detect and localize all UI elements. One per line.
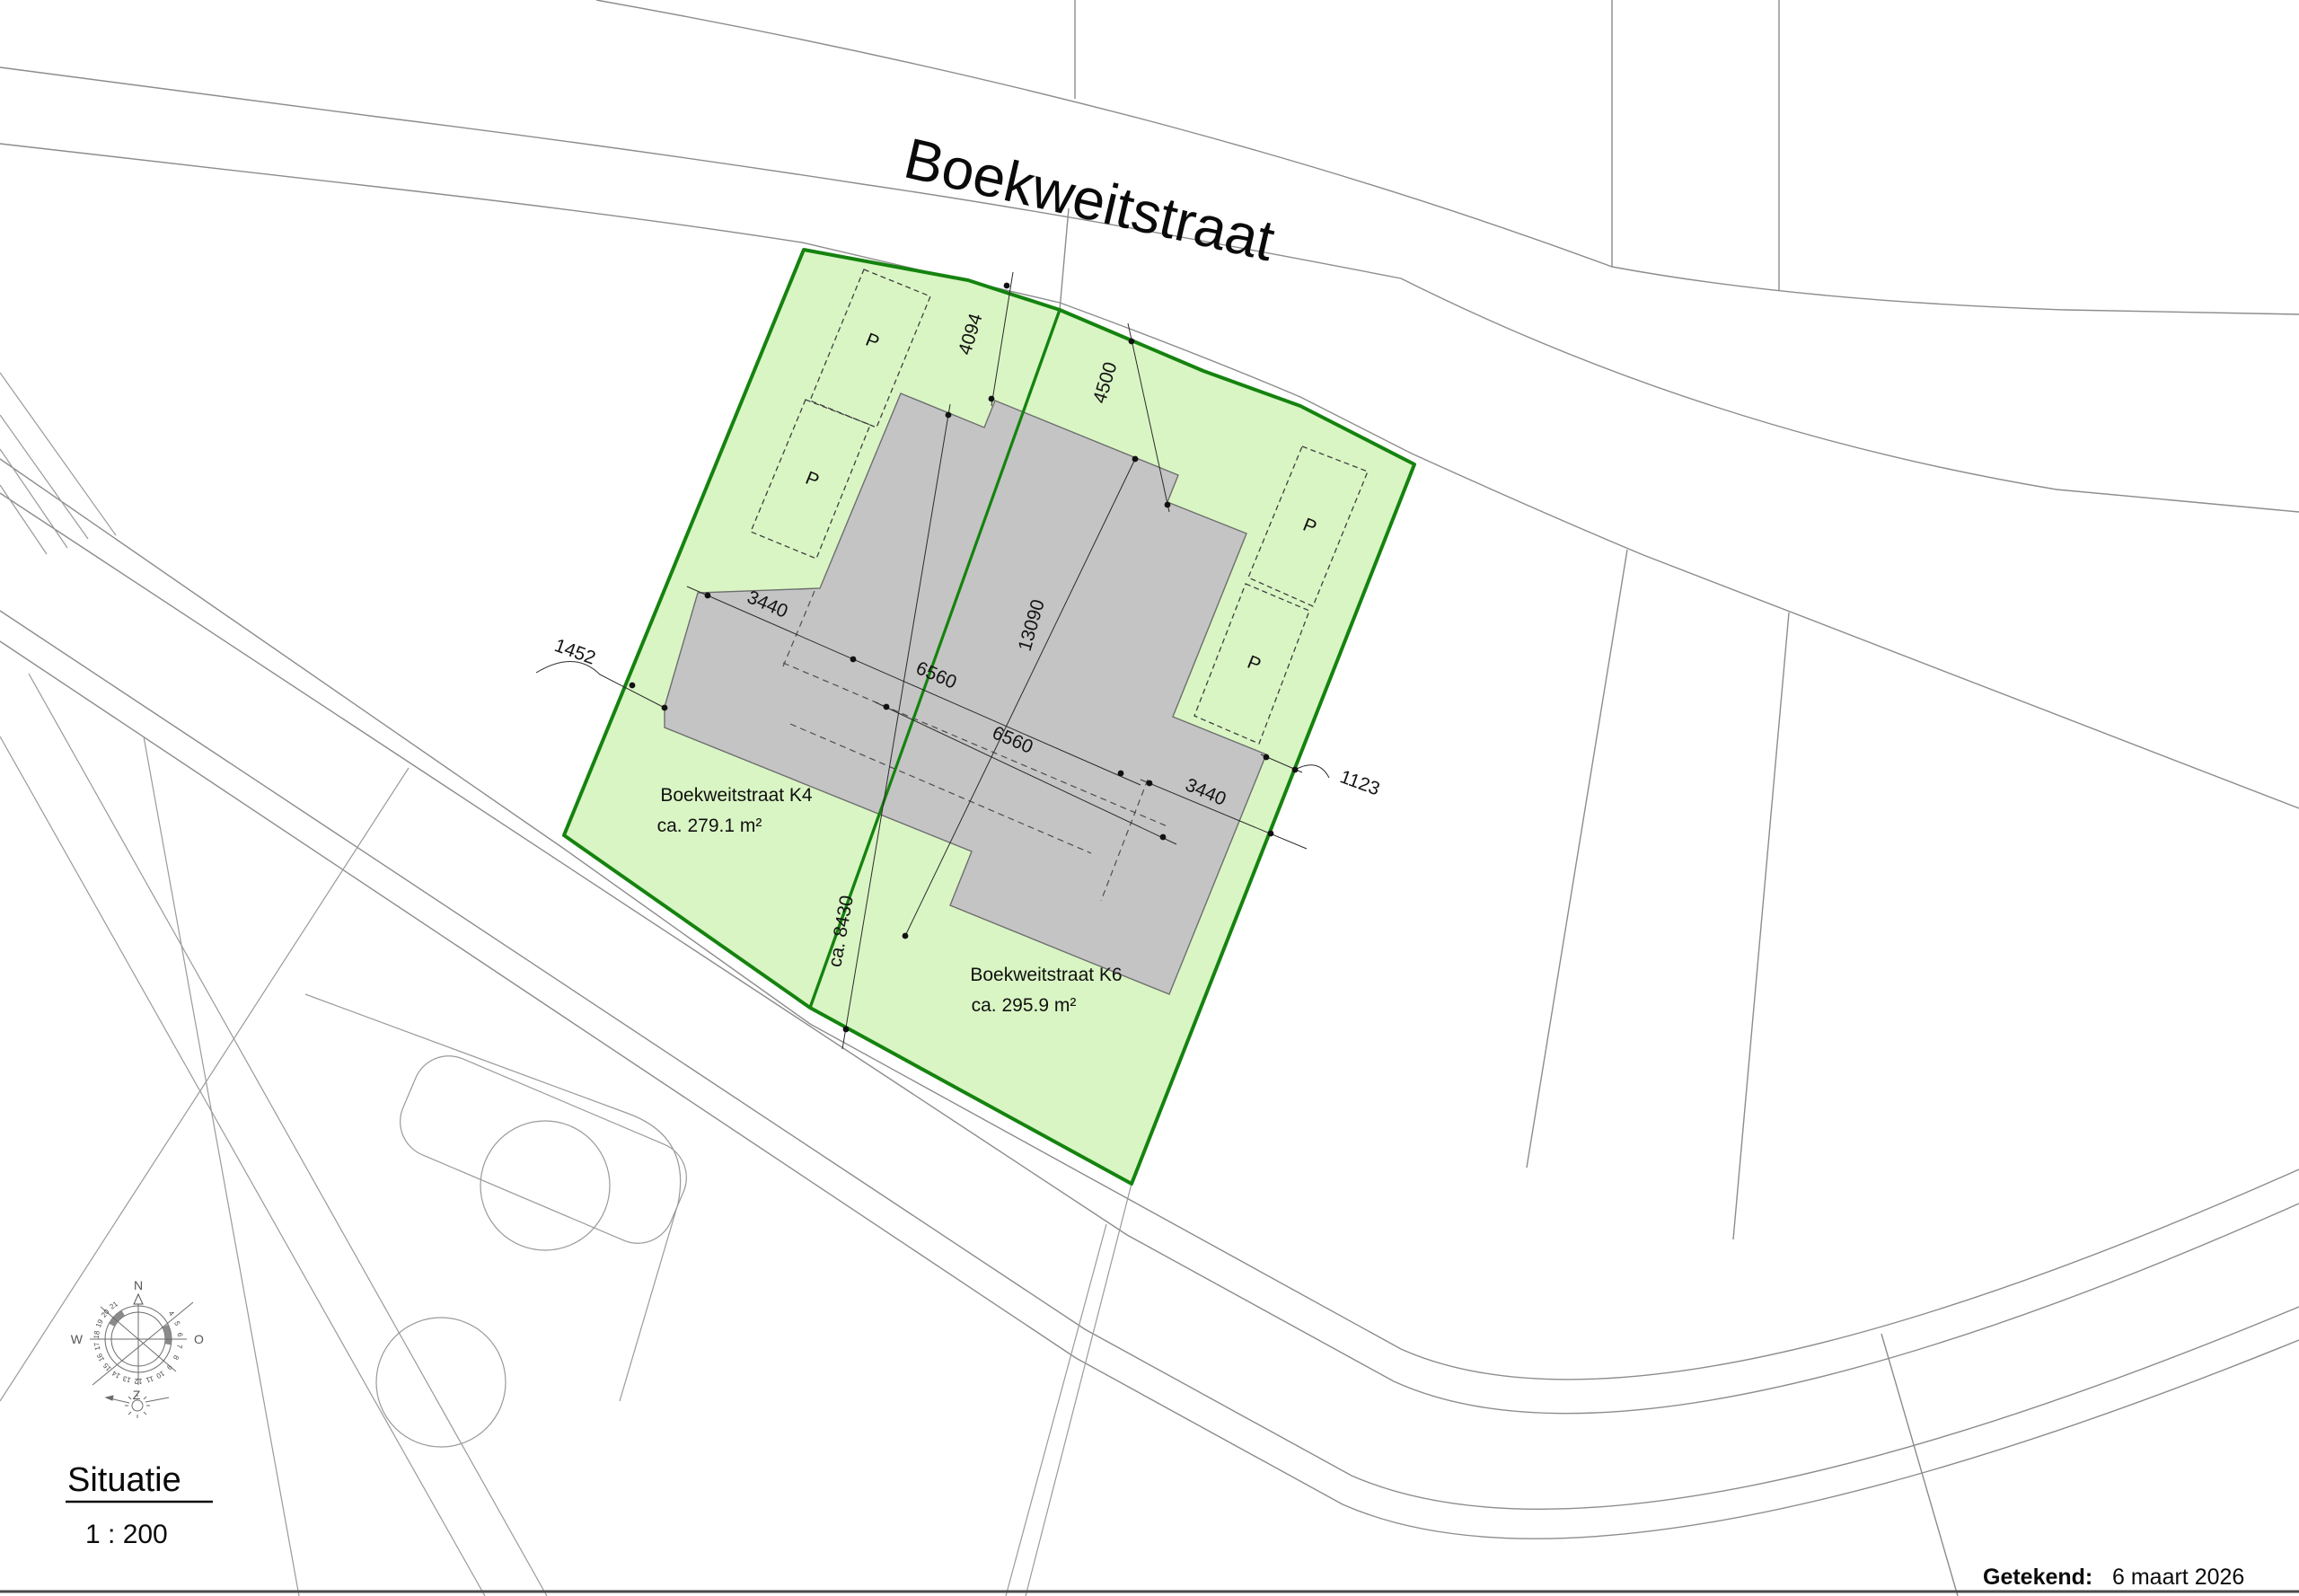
dim-dot xyxy=(630,683,636,689)
compass-hour: 11 xyxy=(145,1374,154,1384)
dim-dot xyxy=(903,933,909,939)
compass-hour: 5 xyxy=(172,1320,181,1327)
compass-hour: 12 xyxy=(134,1377,142,1385)
street-name-label: Boekweitstraat xyxy=(899,126,1281,274)
compass-hour: 9 xyxy=(164,1362,173,1371)
compass-hour: 10 xyxy=(154,1369,166,1380)
parcel-line-bottom-right xyxy=(1881,1334,1958,1596)
dim-dot xyxy=(705,593,711,599)
dim-dot xyxy=(662,705,668,711)
plot-k6-name: Boekweitstraat K6 xyxy=(970,965,1122,985)
parcel-line-tip-parallel xyxy=(1006,1224,1106,1596)
footer: Getekend: 6 maart 2026 xyxy=(1983,1565,2244,1590)
compass-dark-arc-northwest xyxy=(109,1310,125,1327)
dim-dot xyxy=(989,396,995,402)
compass-north-label: N xyxy=(134,1278,143,1292)
dim-dot xyxy=(1147,780,1153,787)
drawing-title: Situatie xyxy=(67,1461,181,1499)
compass-hour: 16 xyxy=(95,1352,106,1362)
compass-hour: 8 xyxy=(172,1354,181,1361)
compass-hour: 19 xyxy=(94,1318,105,1328)
neighbour-round-structure-1 xyxy=(480,1121,610,1250)
compass-hour: 7 xyxy=(175,1344,184,1349)
parcel-line-tip-extension xyxy=(1026,1184,1132,1596)
plot-k4-name: Boekweitstraat K4 xyxy=(660,785,813,806)
footer-drawn-label: Getekend: xyxy=(1983,1565,2092,1590)
compass-rose: N O Z W 4 5 6 7 8 9 10 11 12 13 14 15 16… xyxy=(71,1278,204,1418)
dim-dot xyxy=(1292,767,1299,773)
compass-hour: 18 xyxy=(92,1330,101,1339)
compass-north-triangle xyxy=(134,1294,143,1304)
compass-hour: 21 xyxy=(108,1300,119,1311)
dim-1123-label: 1123 xyxy=(1337,766,1382,799)
compass-east-label: O xyxy=(194,1332,204,1346)
plot-k6-area: ca. 295.9 m² xyxy=(972,995,1077,1016)
sw-parcel-line-2 xyxy=(29,674,547,1596)
neighbour-round-structure-2 xyxy=(376,1318,506,1447)
dim-dot xyxy=(850,657,857,663)
compass-hour: 15 xyxy=(101,1361,113,1372)
compass-hour: 14 xyxy=(110,1369,122,1380)
site-plan: Boekweitstraat P P P P 4094 4500 1309 xyxy=(0,0,2299,1596)
compass-hour: 13 xyxy=(121,1374,132,1384)
compass-west-label: W xyxy=(71,1332,84,1346)
compass-dark-arc-east xyxy=(163,1325,172,1345)
dim-dot xyxy=(843,1027,850,1033)
dim-dot xyxy=(946,412,952,419)
dim-dot xyxy=(1132,456,1139,463)
drawing-scale: 1 : 200 xyxy=(85,1520,168,1549)
dim-dot xyxy=(1118,771,1124,777)
dim-dot xyxy=(1165,502,1171,508)
sw-parcel-line-1 xyxy=(0,768,409,1401)
plot-k4-area: ca. 279.1 m² xyxy=(657,816,762,836)
title-block: Situatie 1 : 200 xyxy=(66,1461,213,1549)
compass-hour: 20 xyxy=(100,1308,111,1319)
dim-dot xyxy=(1004,283,1010,289)
dim-dot xyxy=(884,704,890,710)
compass-hour: 17 xyxy=(92,1341,102,1351)
footer-drawn-date: 6 maart 2026 xyxy=(2112,1565,2244,1590)
dim-dot xyxy=(1264,754,1270,761)
sw-parcel-rounded-corner xyxy=(305,994,681,1401)
compass-hour: 6 xyxy=(176,1332,184,1337)
dim-dot xyxy=(1268,831,1274,837)
parcel-line-right-1 xyxy=(1527,550,1627,1168)
compass-hour: 4 xyxy=(167,1309,176,1318)
dim-dot xyxy=(1160,834,1167,841)
dim-1452-label: 1452 xyxy=(551,635,598,669)
parcel-line-right-2 xyxy=(1733,613,1789,1239)
neighbour-house xyxy=(389,1045,698,1254)
dim-dot xyxy=(1129,339,1135,345)
